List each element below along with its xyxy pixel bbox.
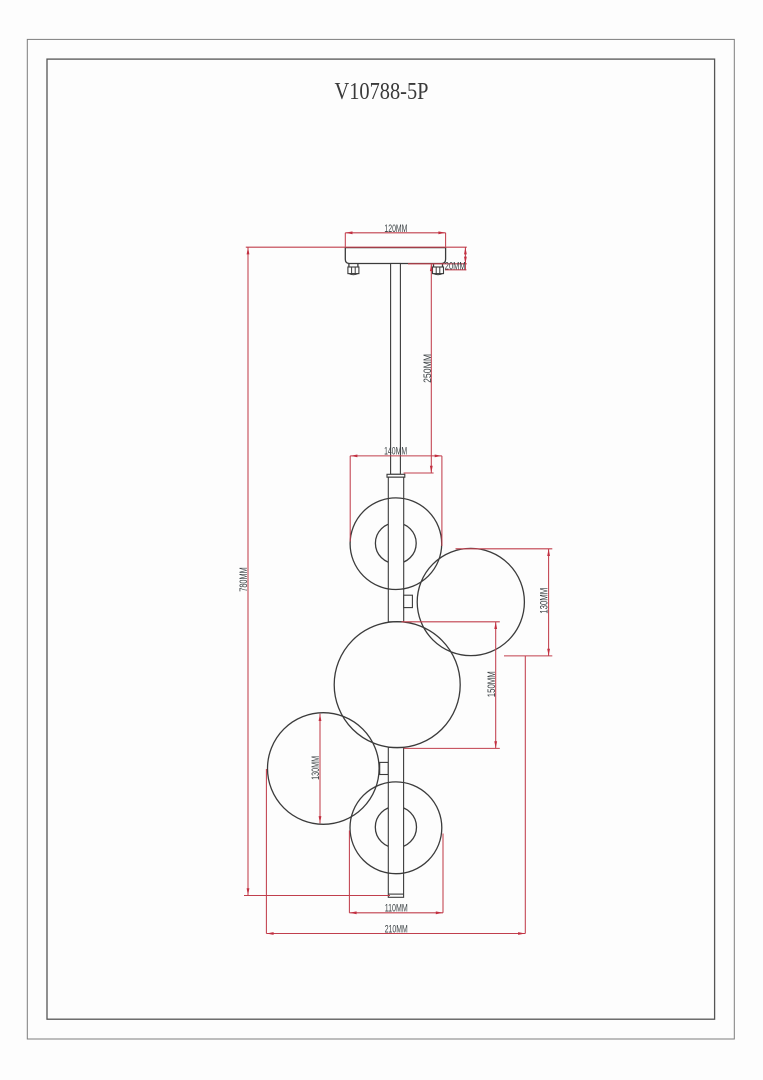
svg-text:140MM: 140MM [384, 445, 407, 457]
svg-text:110MM: 110MM [385, 903, 408, 915]
svg-text:780MM: 780MM [238, 567, 250, 592]
svg-text:V10788-5P: V10788-5P [335, 79, 429, 105]
svg-text:210MM: 210MM [385, 924, 408, 936]
svg-text:120MM: 120MM [384, 223, 407, 235]
svg-text:150MM: 150MM [486, 671, 498, 697]
svg-text:250MM: 250MM [422, 354, 434, 383]
svg-text:130MM: 130MM [539, 588, 551, 614]
svg-text:130MM: 130MM [310, 756, 322, 780]
svg-text:20MM: 20MM [445, 260, 466, 272]
